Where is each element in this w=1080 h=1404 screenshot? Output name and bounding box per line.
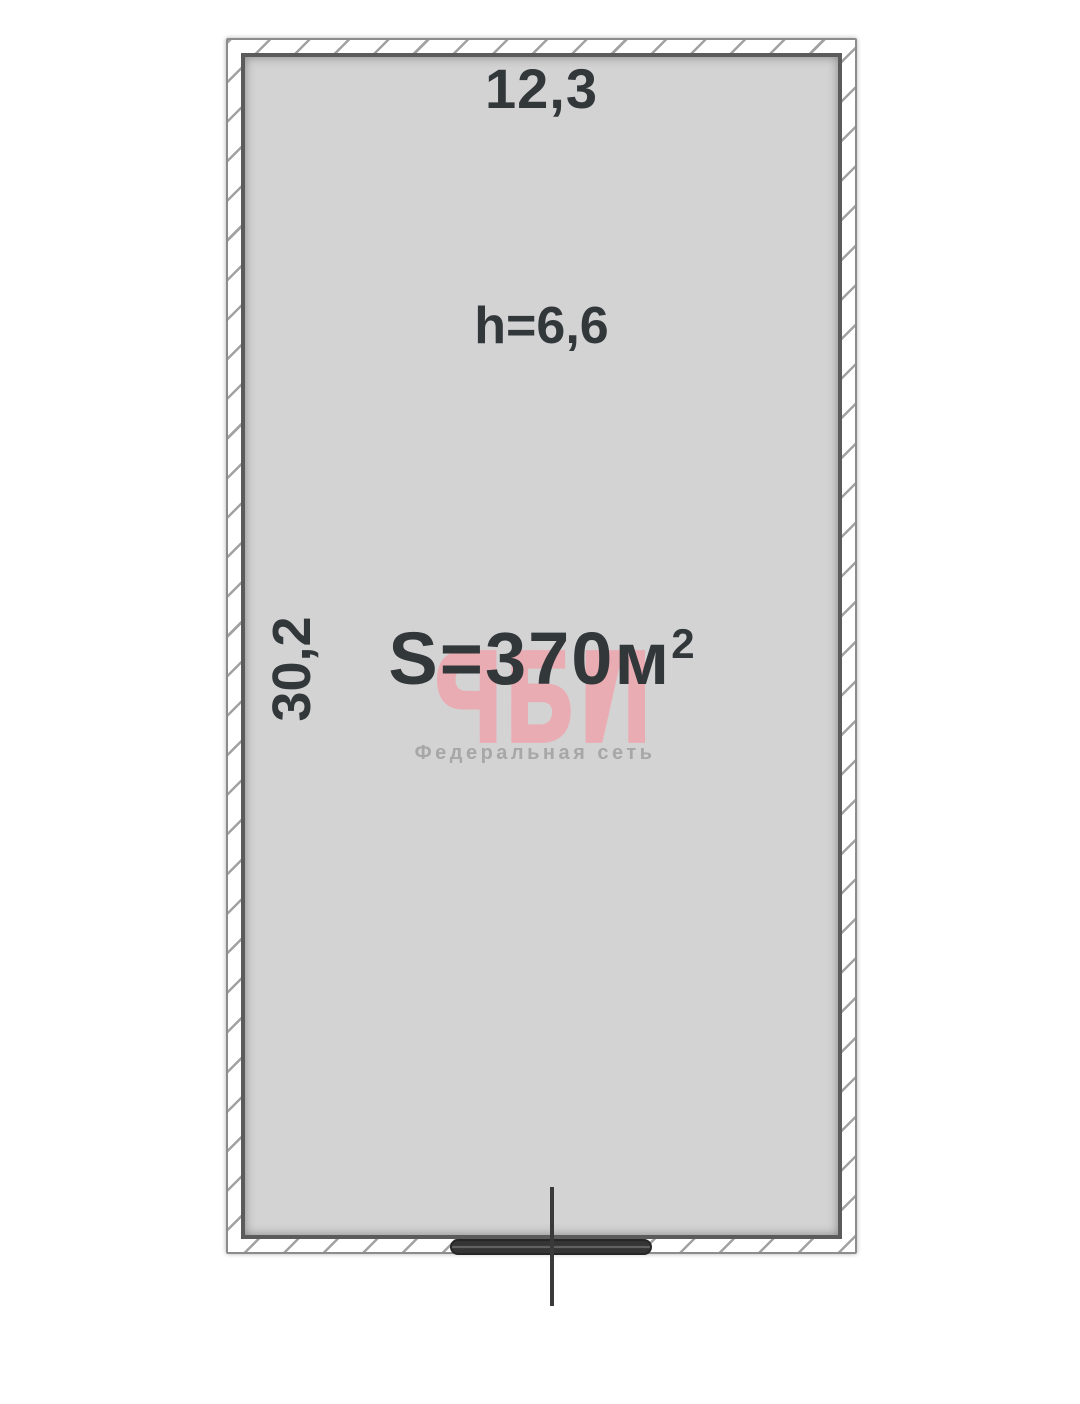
area-value: S=370м — [388, 617, 671, 700]
ceiling-height-label: h=6,6 — [226, 298, 857, 354]
watermark-subtitle: Федеральная сеть — [395, 740, 675, 766]
area-superscript: 2 — [671, 620, 694, 667]
dimension-width-label: 12,3 — [226, 60, 857, 118]
floor-plan-canvas: РБН Федеральная сеть 12,3 h=6,6 30,2 S=3… — [0, 0, 1080, 1404]
watermark-logo-text: РБН — [0, 0, 1, 1]
entrance-axis-line — [550, 1187, 554, 1306]
area-label: S=370м2 — [226, 606, 857, 697]
